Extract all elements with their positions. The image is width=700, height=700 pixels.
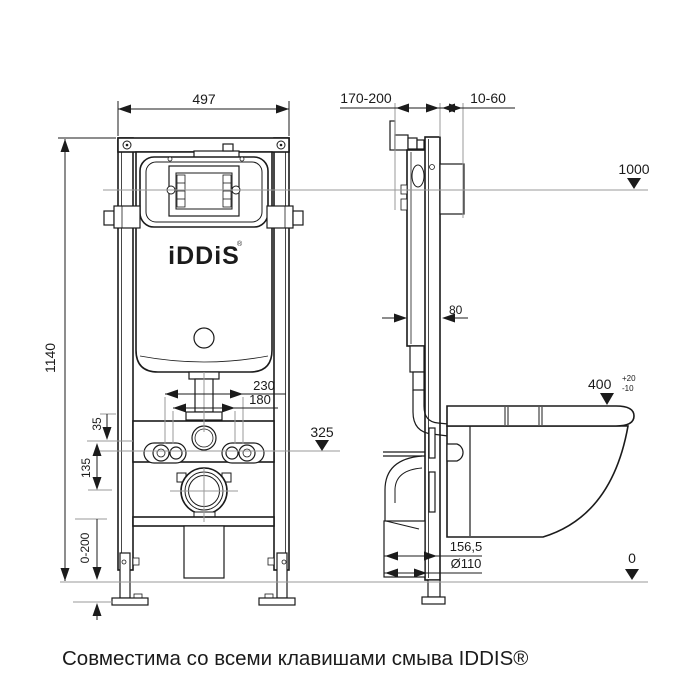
mounting-bolt-right: [222, 443, 264, 463]
mounting-bolt-left: [144, 443, 186, 463]
cistern-side: [401, 150, 426, 390]
flush-valve-cap: [194, 328, 214, 348]
brand-logo: iDDiS: [168, 242, 240, 270]
dim-frame-depth: 80: [449, 303, 463, 317]
access-panel: [140, 144, 268, 227]
wall-plate: [440, 164, 464, 214]
wall-anchor-right: [267, 206, 303, 228]
level-floor-label: 0: [628, 550, 636, 566]
dim-bowl-height: 400: [588, 376, 612, 392]
dim-bowl-height-tol-minus: -10: [622, 384, 634, 393]
dim-drain-diameter: Ø110: [451, 556, 482, 571]
side-view: [383, 121, 634, 604]
dim-offset-mid: 135: [79, 458, 93, 478]
dim-bolt-spacing-inner: 180: [249, 392, 271, 407]
dim-wall-gap: 10-60: [470, 90, 506, 106]
front-view: iDDiS ®: [104, 138, 303, 605]
dim-offset-top: 35: [90, 417, 104, 431]
dim-bolt-spacing-outer: 230: [253, 378, 275, 393]
dim-leg-adjust: 0-200: [78, 532, 92, 563]
dim-drain-offset: 156,5: [450, 539, 483, 554]
brand-logo-mark: ®: [237, 240, 243, 248]
level-bolts-label: 325: [310, 424, 334, 440]
compatibility-caption: Совместима со всеми клавишами смыва IDDI…: [62, 647, 528, 670]
installation-frame-drawing: iDDiS ®: [0, 0, 700, 700]
toilet-bowl-side: [429, 406, 634, 537]
level-top-label: 1000: [618, 161, 649, 177]
outlet-duct: [184, 526, 224, 578]
dim-front-width: 497: [192, 91, 216, 107]
technical-drawing-svg: iDDiS ®: [0, 0, 700, 700]
wall-anchor-left: [104, 206, 140, 228]
drain-elbow-side: [383, 452, 425, 577]
dim-install-depth: 170-200: [340, 90, 392, 106]
dim-bowl-height-tol-plus: +20: [622, 374, 636, 383]
dim-front-height: 1140: [42, 343, 58, 373]
